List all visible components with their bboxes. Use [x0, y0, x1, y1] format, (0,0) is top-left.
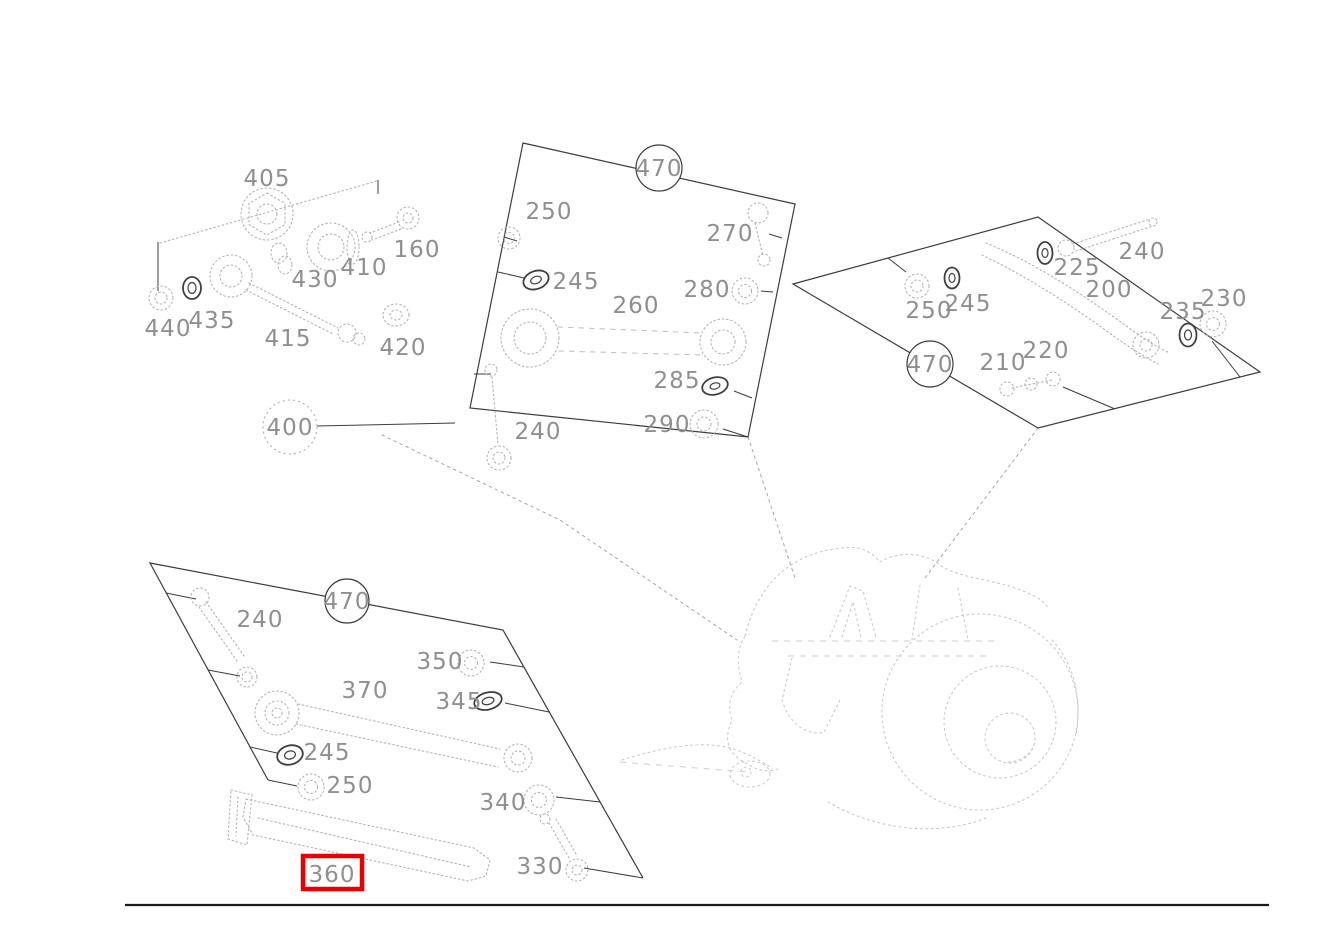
group-ref-label[interactable]: 470: [636, 156, 683, 182]
part-drawing-405: [241, 188, 293, 240]
pointer-line: [620, 762, 748, 772]
part-label-345[interactable]: 345: [436, 689, 483, 715]
part-label-290[interactable]: 290: [644, 412, 691, 438]
part-drawing-340: [524, 785, 554, 815]
panel-outline: [470, 143, 795, 437]
part-label-360-highlighted[interactable]: 360: [309, 862, 356, 888]
right-panel: 470 250 245 225 240 200 230 235 210 220: [793, 217, 1260, 428]
part-label-330[interactable]: 330: [517, 854, 564, 880]
part-label-350[interactable]: 350: [417, 649, 464, 675]
assembly-reference: 400: [263, 400, 455, 454]
part-label-250[interactable]: 250: [526, 199, 573, 225]
part-drawing-370: [255, 691, 532, 772]
bottom-panel: 470 240 350 370 345 245 250 340 330 360: [150, 563, 643, 889]
part-drawing-430: [271, 243, 292, 274]
part-label-340[interactable]: 340: [480, 790, 527, 816]
part-drawing-285: [700, 374, 730, 397]
part-label-160[interactable]: 160: [394, 237, 441, 263]
part-drawing-240: [485, 364, 511, 470]
part-label-250[interactable]: 250: [327, 773, 374, 799]
top-left-cluster: 405 160 410 430 435 440 415 420: [145, 166, 441, 361]
part-label-240[interactable]: 240: [237, 607, 284, 633]
part-label-210[interactable]: 210: [980, 350, 1027, 376]
part-label-440[interactable]: 440: [145, 316, 192, 342]
part-drawing-245: [521, 267, 552, 293]
part-label-370[interactable]: 370: [342, 678, 389, 704]
part-label-240[interactable]: 240: [1119, 239, 1166, 265]
parts-diagram-canvas: 405 160 410 430 435 440 415 420 400: [0, 0, 1326, 938]
part-drawing-225: [1038, 242, 1053, 264]
part-label-245[interactable]: 245: [304, 740, 351, 766]
middle-panel: 470 250 245 260 270 280 285 290 240: [470, 143, 795, 470]
part-drawing-420: [383, 304, 409, 326]
part-drawing-360: [228, 790, 490, 881]
part-drawing-250: [498, 227, 520, 249]
part-label-230[interactable]: 230: [1201, 286, 1248, 312]
assembly-ref-label[interactable]: 400: [267, 415, 314, 441]
part-label-410[interactable]: 410: [341, 255, 388, 281]
part-label-220[interactable]: 220: [1023, 338, 1070, 364]
pointer-line: [925, 428, 1038, 578]
part-drawing-250: [298, 774, 324, 800]
pointer-line: [748, 437, 795, 578]
part-label-430[interactable]: 430: [292, 267, 339, 293]
part-drawing-435: [183, 277, 201, 299]
part-label-415[interactable]: 415: [265, 326, 312, 352]
part-label-260[interactable]: 260: [613, 293, 660, 319]
part-label-245[interactable]: 245: [945, 291, 992, 317]
axle-assembly-sketch: [622, 547, 1078, 828]
part-label-435[interactable]: 435: [189, 308, 236, 334]
part-drawing-250: [905, 274, 929, 298]
part-drawing-280: [732, 278, 758, 304]
part-label-280[interactable]: 280: [684, 277, 731, 303]
group-ref-label[interactable]: 470: [907, 352, 954, 378]
pointer-line: [382, 435, 737, 640]
part-label-285[interactable]: 285: [654, 368, 701, 394]
part-label-405[interactable]: 405: [244, 166, 291, 192]
part-label-235[interactable]: 235: [1160, 299, 1207, 325]
part-drawing-245: [945, 268, 960, 289]
part-label-200[interactable]: 200: [1086, 277, 1133, 303]
part-label-240[interactable]: 240: [515, 419, 562, 445]
part-drawing-bolt-head: [237, 667, 257, 687]
part-drawing-245: [275, 742, 305, 767]
part-drawing-440: [149, 286, 173, 310]
part-label-420[interactable]: 420: [380, 335, 427, 361]
part-label-245[interactable]: 245: [553, 269, 600, 295]
group-ref-label[interactable]: 470: [324, 589, 371, 615]
part-drawing-235: [1180, 324, 1197, 347]
panel-outline: [150, 563, 643, 878]
part-label-270[interactable]: 270: [707, 221, 754, 247]
